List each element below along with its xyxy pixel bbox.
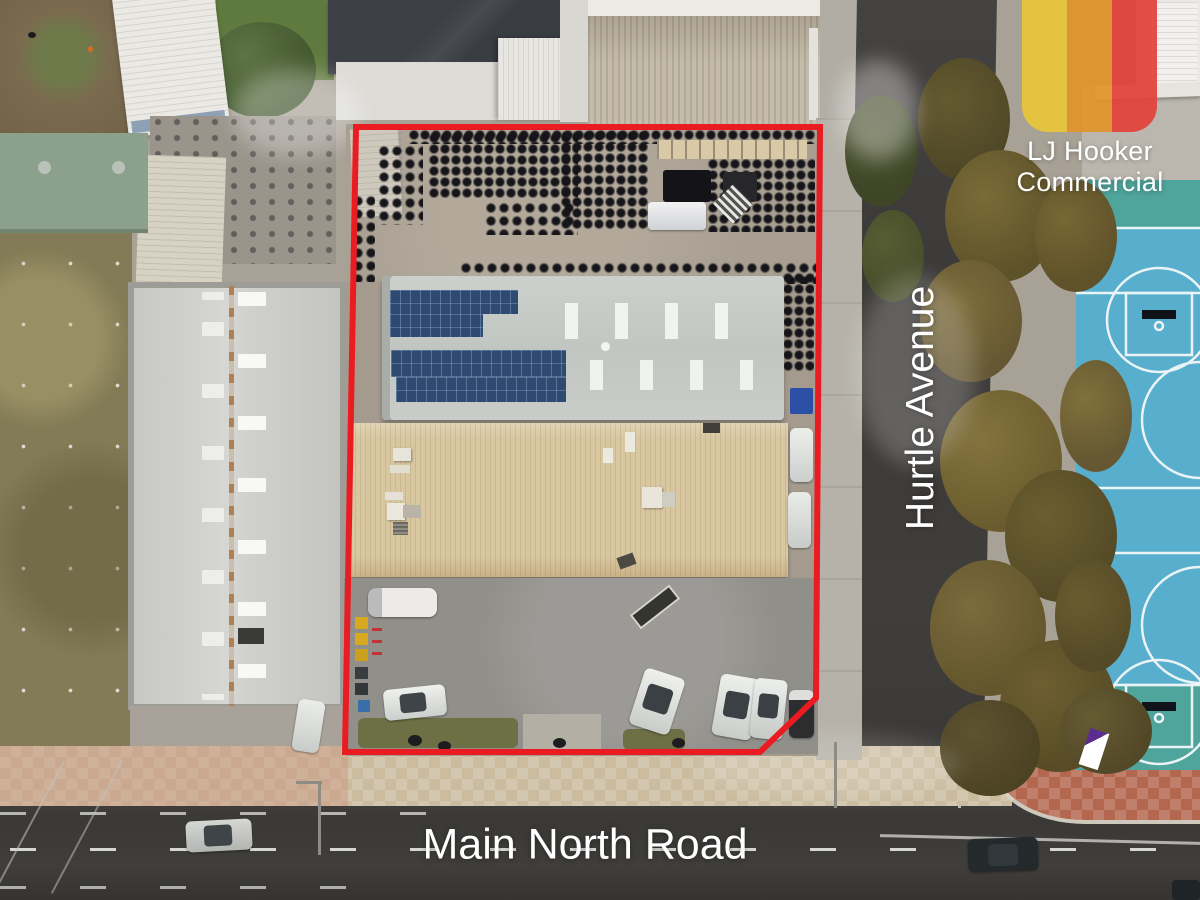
ljhooker-logo: [1022, 0, 1157, 132]
brand-line2: Commercial: [989, 167, 1191, 198]
brand-line1: LJ Hooker: [989, 136, 1191, 167]
logo-stripe-yellow: [1022, 0, 1067, 132]
street-label-hurtle-avenue: Hurtle Avenue: [899, 286, 943, 530]
street-label-main-north-road: Main North Road: [422, 821, 747, 870]
brand-name: LJ Hooker Commercial: [989, 136, 1191, 198]
property-boundary: [0, 0, 1200, 900]
aerial-photo: LJ Hooker Commercial Hurtle Avenue Main …: [0, 0, 1200, 900]
logo-stripe-red: [1112, 0, 1157, 132]
logo-stripe-orange: [1067, 0, 1112, 132]
